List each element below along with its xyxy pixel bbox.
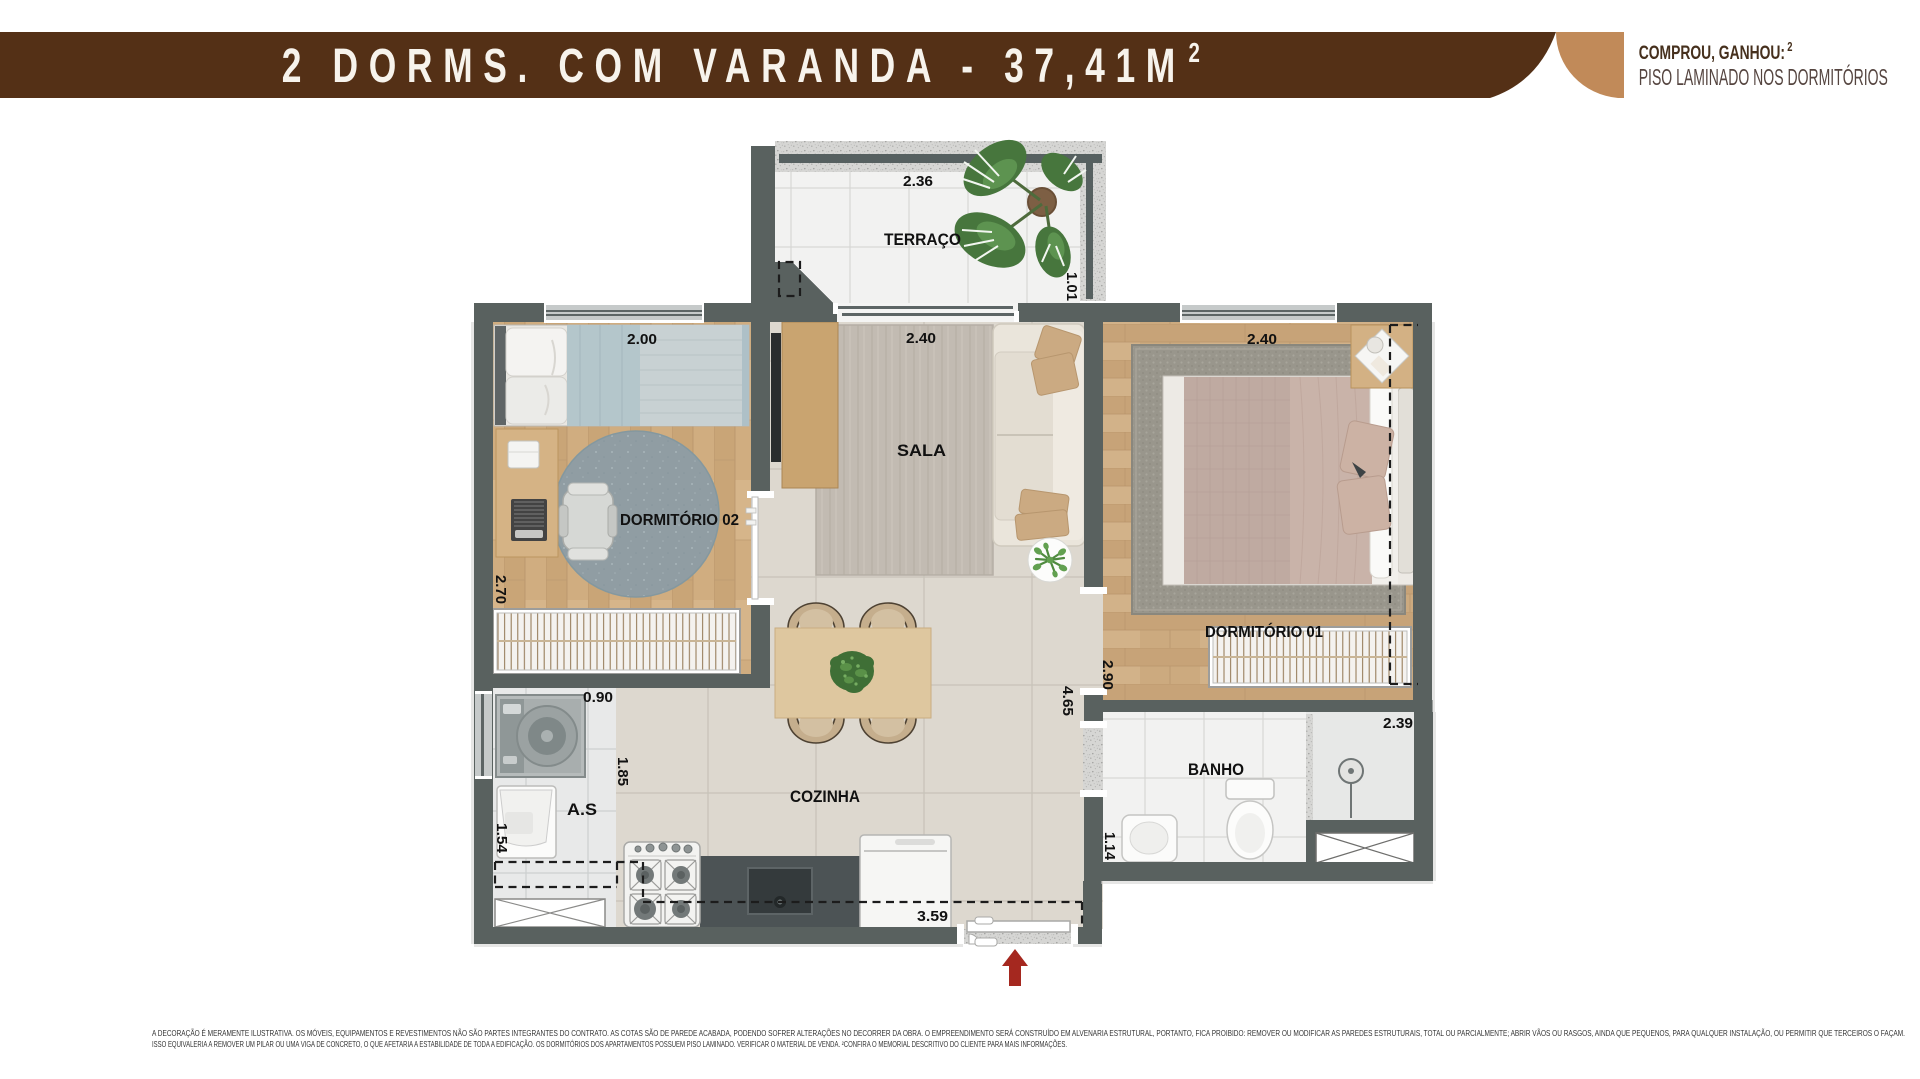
svg-text:ISSO EQUIVALERIA A REMOVER UM: ISSO EQUIVALERIA A REMOVER UM PILAR OU U… — [152, 1039, 1067, 1049]
svg-text:SALA: SALA — [897, 441, 946, 460]
svg-text:COZINHA: COZINHA — [790, 787, 860, 806]
svg-text:DORMITÓRIO 02: DORMITÓRIO 02 — [620, 510, 739, 529]
svg-text:2.39: 2.39 — [1383, 716, 1413, 732]
svg-text:2.40: 2.40 — [906, 331, 936, 347]
svg-text:1.85: 1.85 — [614, 757, 630, 786]
svg-text:3.59: 3.59 — [917, 909, 948, 925]
svg-text:0.90: 0.90 — [583, 690, 613, 706]
svg-text:4.65: 4.65 — [1059, 686, 1075, 716]
svg-text:2.70: 2.70 — [492, 575, 508, 604]
svg-text:A DECORAÇÃO É MERAMENTE ILUSTR: A DECORAÇÃO É MERAMENTE ILUSTRATIVA. OS … — [152, 1028, 1905, 1038]
svg-text:2.00: 2.00 — [627, 332, 657, 348]
svg-text:DORMITÓRIO 01: DORMITÓRIO 01 — [1205, 622, 1323, 641]
svg-text:1.54: 1.54 — [493, 823, 509, 853]
svg-text:1.14: 1.14 — [1101, 832, 1117, 860]
svg-text:A.S: A.S — [567, 800, 597, 819]
svg-text:BANHO: BANHO — [1188, 760, 1244, 779]
svg-text:2.36: 2.36 — [903, 174, 933, 190]
svg-text:TERRAÇO: TERRAÇO — [884, 230, 961, 249]
svg-text:1.01: 1.01 — [1063, 272, 1079, 301]
svg-text:2.90: 2.90 — [1099, 660, 1115, 690]
svg-text:2.40: 2.40 — [1247, 332, 1277, 348]
